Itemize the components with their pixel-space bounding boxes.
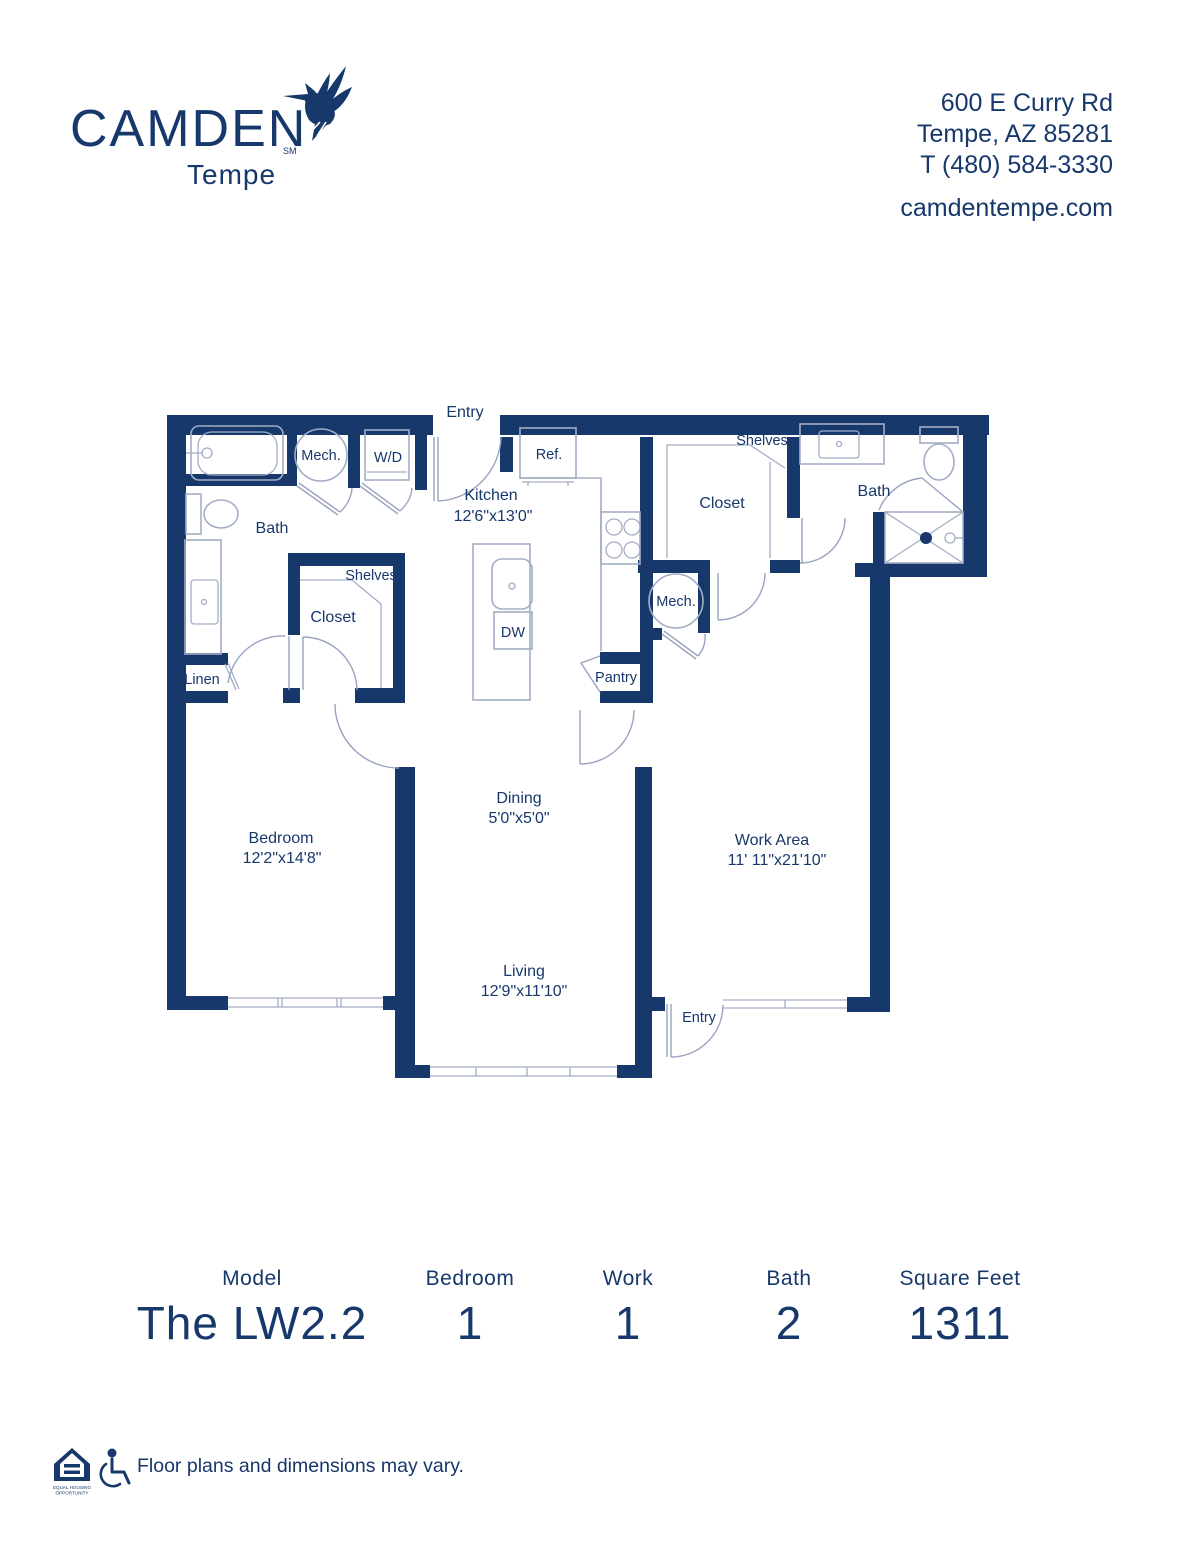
summary-value: 2 — [766, 1300, 811, 1346]
summary-label: Bath — [766, 1267, 811, 1291]
doors — [228, 437, 963, 1057]
accessibility-icon — [101, 1449, 129, 1487]
room-label-closet-b: Closet — [699, 495, 745, 512]
bedroom-closet-shelves — [300, 580, 381, 688]
work-window — [723, 1000, 847, 1008]
equal-housing-icon: EQUAL HOUSING OPPORTUNITY — [53, 1448, 92, 1496]
sink-vanity-icon — [185, 540, 221, 654]
room-label-dining: Dining — [496, 790, 541, 807]
room-label-living: Living — [503, 963, 545, 980]
summary-value: 1 — [426, 1300, 515, 1346]
room-label-work-area: Work Area — [735, 832, 810, 849]
room-label-closet-a: Closet — [310, 609, 356, 626]
room-label-shelves-b: Shelves — [736, 433, 788, 449]
room-label-bedroom: Bedroom — [249, 830, 314, 847]
summary-label: Bedroom — [426, 1267, 515, 1291]
windows — [228, 998, 847, 1076]
summary-value: 1 — [603, 1300, 654, 1346]
summary-value: 1311 — [899, 1300, 1020, 1346]
room-label-entry-work: Entry — [682, 1010, 717, 1026]
summary-col-bedroom: Bedroom 1 — [426, 1267, 515, 1346]
summary-col-work: Work 1 — [603, 1267, 654, 1346]
summary-label: Square Feet — [899, 1267, 1020, 1291]
toilet-icon — [186, 494, 238, 534]
entry-door-panel — [434, 437, 438, 501]
stove-icon — [601, 512, 640, 564]
hummingbird-icon — [283, 66, 352, 141]
room-label-shelves-a: Shelves — [345, 568, 397, 584]
room-label-ref: Ref. — [536, 447, 563, 463]
room-dims-work-area: 11' 11"x21'10" — [728, 852, 827, 869]
room-dims-bedroom: 12'2"x14'8" — [243, 850, 322, 867]
island-sink-icon — [492, 559, 532, 609]
room-label-bath-b: Bath — [858, 483, 891, 500]
room-label-entry-top: Entry — [446, 404, 483, 421]
room-label-bath-a: Bath — [256, 520, 289, 537]
summary-value: The LW2.2 — [137, 1300, 368, 1346]
room-label-linen: Linen — [184, 672, 219, 688]
eho-text-line1: EQUAL HOUSING — [53, 1485, 92, 1490]
summary-label: Model — [137, 1267, 368, 1291]
summary-col-model: Model The LW2.2 — [137, 1267, 368, 1346]
eho-text-line2: OPPORTUNITY — [55, 1491, 88, 1496]
disclaimer-text: Floor plans and dimensions may vary. — [137, 1455, 464, 1478]
room-label-pantry: Pantry — [595, 670, 638, 686]
room-label-wd: W/D — [374, 450, 402, 466]
floorplan-sheet: CAMDEN SM Tempe 600 E Curry Rd Tempe, AZ… — [0, 0, 1200, 1553]
summary-col-bath: Bath 2 — [766, 1267, 811, 1346]
summary-col-sqft: Square Feet 1311 — [899, 1267, 1020, 1346]
bedroom-window — [228, 998, 383, 1007]
room-label-kitchen: Kitchen — [464, 487, 517, 504]
floorplan-walls — [167, 415, 989, 1078]
room-label-mech-b: Mech. — [656, 594, 696, 610]
entry2-door-panel — [667, 1004, 671, 1057]
room-label-dw: DW — [501, 625, 525, 641]
summary-label: Work — [603, 1267, 654, 1291]
shower-icon — [885, 512, 963, 563]
room-dims-kitchen: 12'6"x13'0" — [454, 508, 533, 525]
room-dims-living: 12'9"x11'10" — [481, 983, 568, 1000]
room-dims-dining: 5'0"x5'0" — [488, 810, 549, 827]
room-label-mech-a: Mech. — [301, 448, 341, 464]
kitchen-island — [473, 544, 532, 700]
living-window — [430, 1067, 617, 1076]
room-labels: Entry Mech. W/D Ref. Bath Kitchen 12'6"x… — [184, 404, 890, 1026]
